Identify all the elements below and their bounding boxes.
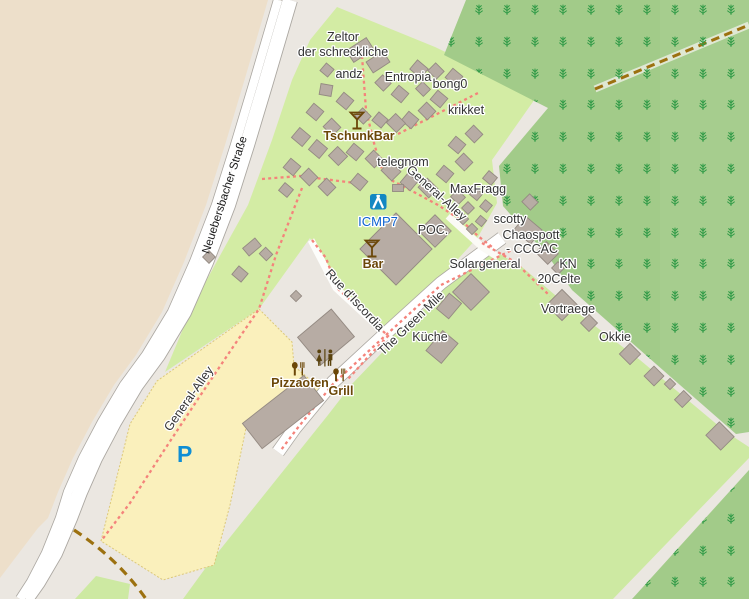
svg-text:20Celte: 20Celte xyxy=(537,272,580,286)
svg-text:Pizzaofen: Pizzaofen xyxy=(271,376,329,390)
svg-text:- CCCAC: - CCCAC xyxy=(506,242,558,256)
svg-text:MaxFragg: MaxFragg xyxy=(450,182,506,196)
svg-text:ICMP7: ICMP7 xyxy=(358,214,398,229)
svg-text:P: P xyxy=(177,441,192,467)
svg-text:telegnom: telegnom xyxy=(377,155,428,169)
svg-text:scotty: scotty xyxy=(494,212,527,226)
svg-text:Chaospott: Chaospott xyxy=(503,228,561,242)
svg-text:andz: andz xyxy=(335,67,362,81)
svg-text:krikket: krikket xyxy=(448,103,485,117)
svg-text:Vortraege: Vortraege xyxy=(541,302,595,316)
svg-text:der schreckliche: der schreckliche xyxy=(298,45,388,59)
svg-text:Okkie: Okkie xyxy=(599,330,631,344)
svg-text:POC.: POC. xyxy=(418,223,449,237)
svg-text:Küche: Küche xyxy=(412,330,447,344)
svg-text:Solargeneral: Solargeneral xyxy=(450,257,521,271)
svg-text:Entropia: Entropia xyxy=(385,70,432,84)
svg-text:Grill: Grill xyxy=(328,384,353,398)
svg-text:Zeltor: Zeltor xyxy=(327,30,359,44)
svg-text:KN: KN xyxy=(559,257,576,271)
svg-text:TschunkBar: TschunkBar xyxy=(323,129,394,143)
svg-text:Bar: Bar xyxy=(363,257,384,271)
svg-text:bong0: bong0 xyxy=(433,77,468,91)
